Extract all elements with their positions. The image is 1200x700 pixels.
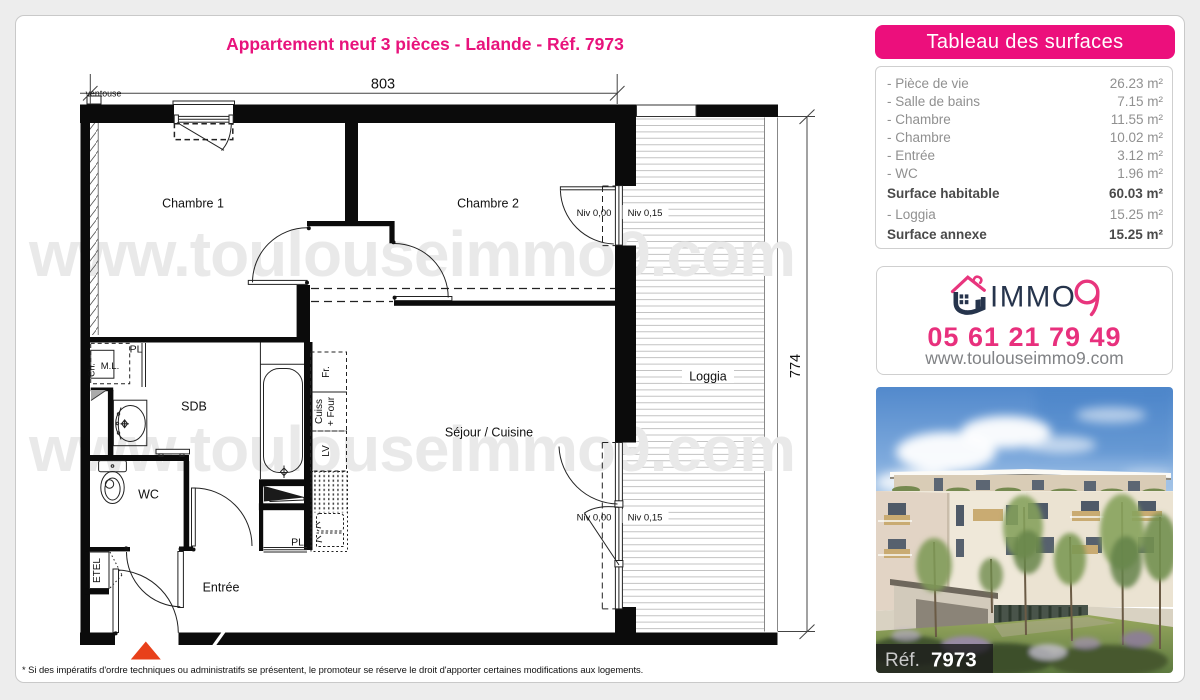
svg-text:www.toulouseimmo9.com: www.toulouseimmo9.com — [28, 413, 795, 485]
svg-text:www.toulouseimmo9.com: www.toulouseimmo9.com — [28, 218, 795, 290]
svg-text:774: 774 — [788, 354, 804, 378]
svg-text:Ch.: Ch. — [87, 363, 97, 377]
svg-text:Séjour / Cuisine: Séjour / Cuisine — [445, 426, 533, 440]
svg-text:Niv 0,00: Niv 0,00 — [577, 208, 612, 219]
svg-text:Niv 0,15: Niv 0,15 — [628, 208, 663, 219]
svg-text:Réf.: Réf. — [885, 650, 920, 671]
svg-text:LV: LV — [321, 445, 332, 457]
svg-text:Loggia: Loggia — [689, 370, 727, 384]
svg-text:PL: PL — [291, 537, 304, 549]
svg-text:IMMO: IMMO — [990, 281, 1076, 314]
svg-text:ETEL: ETEL — [92, 558, 103, 583]
svg-text:Fr.: Fr. — [321, 366, 332, 378]
svg-text:SDB: SDB — [181, 400, 207, 414]
svg-text:PL: PL — [130, 344, 143, 356]
svg-text:Entrée: Entrée — [203, 581, 240, 595]
svg-text:Cuiss: Cuiss — [314, 399, 325, 424]
svg-text:+ Four: + Four — [326, 396, 337, 426]
svg-text:Chambre 2: Chambre 2 — [457, 197, 519, 211]
svg-text:ventouse: ventouse — [86, 89, 122, 99]
svg-text:Niv 0,15: Niv 0,15 — [628, 513, 663, 524]
svg-text:803: 803 — [371, 77, 395, 93]
svg-text:M.L.: M.L. — [101, 361, 119, 372]
svg-text:7973: 7973 — [931, 649, 977, 672]
svg-text:WC: WC — [138, 488, 159, 502]
svg-text:Chambre 1: Chambre 1 — [162, 197, 224, 211]
svg-text:Niv 0,00: Niv 0,00 — [577, 513, 612, 524]
